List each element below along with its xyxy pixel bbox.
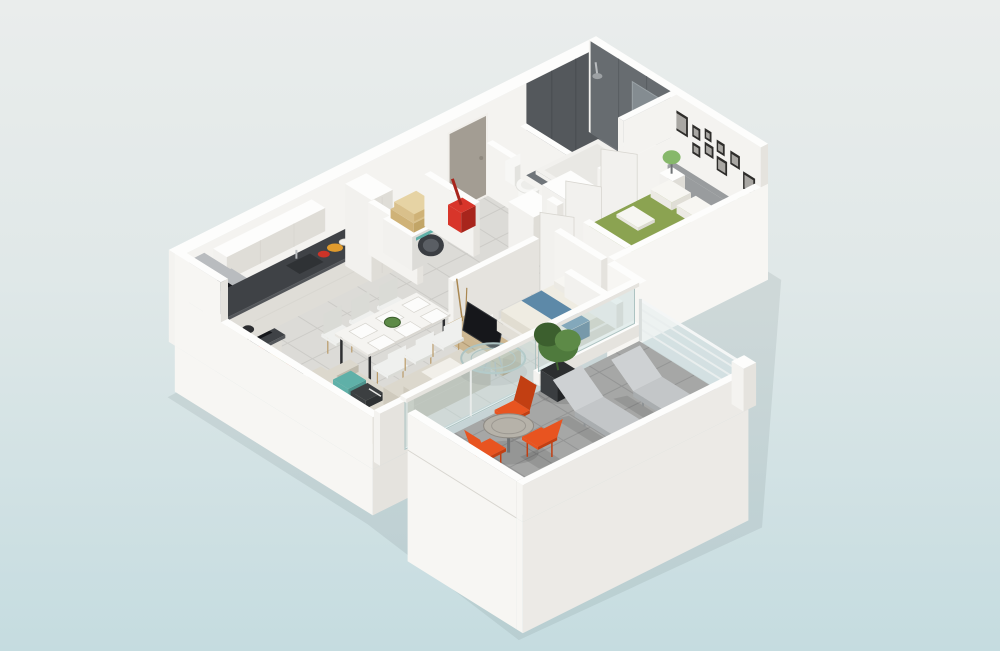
lamp-shade-green [663,150,681,164]
parapet-se-front [516,481,522,522]
fruit-bowl-red [318,251,330,258]
floor-plan-render [0,0,1000,651]
railing-corner-post-front [732,361,744,411]
shower-head [592,73,602,79]
fruit-bowl-orange [327,244,343,252]
fridge-column-front [345,184,371,282]
railing-corner-post-side [744,363,757,412]
parapet-tip-facade [516,518,522,633]
apartment-isometric-scene [0,0,1000,651]
green-centerpiece [384,317,400,327]
door-knob [479,156,483,160]
se-solid-wall-front [374,410,380,466]
sw-wall-tall-side [221,279,228,323]
washer-door-inner [423,239,439,252]
plant-foliage [555,329,581,351]
